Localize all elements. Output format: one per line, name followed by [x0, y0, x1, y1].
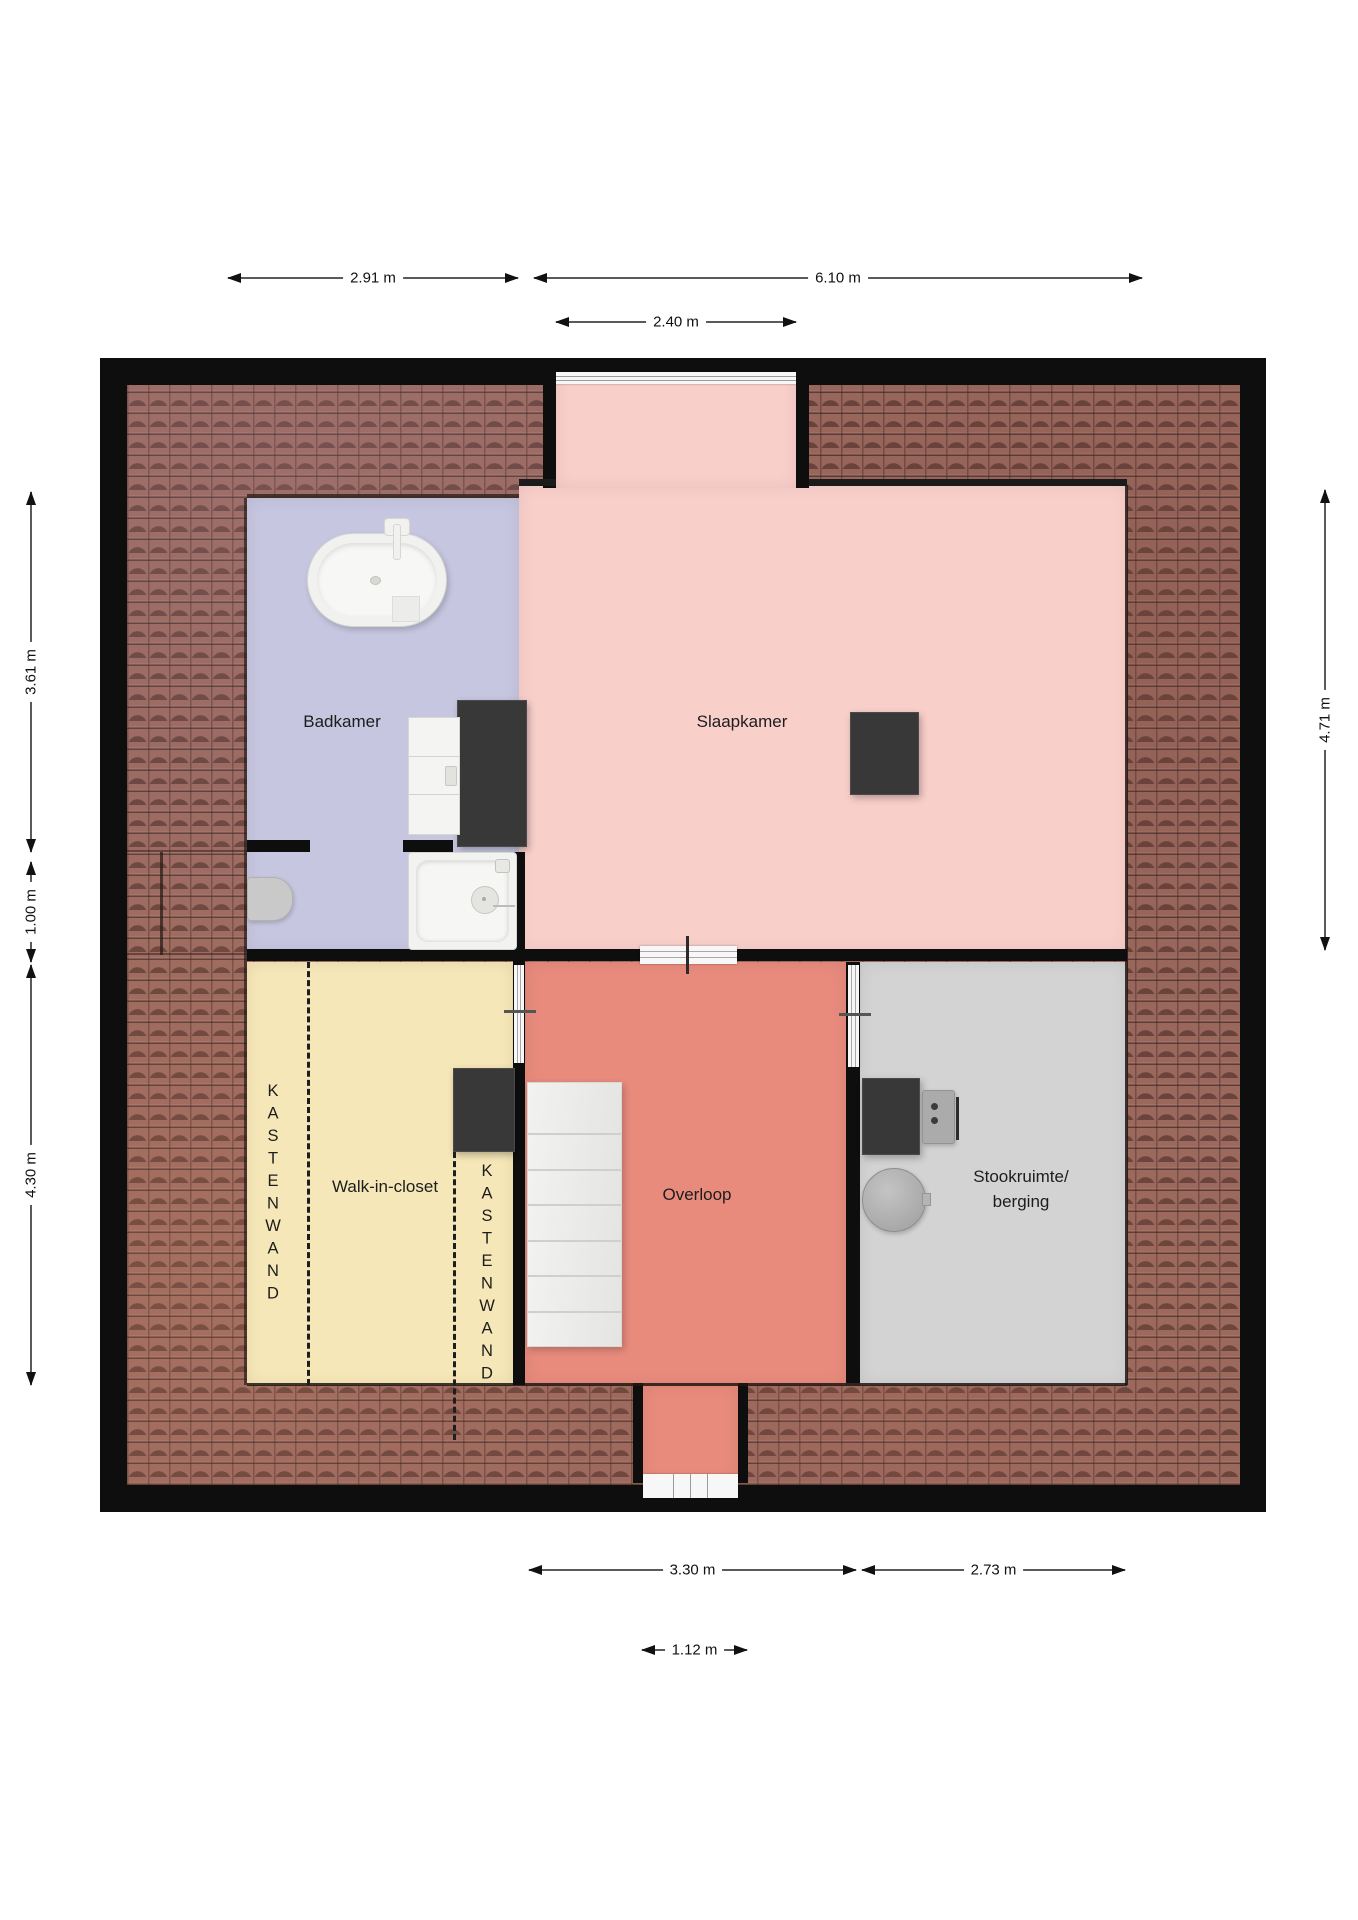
door-line: [851, 965, 852, 1067]
shower-vent: [495, 859, 510, 873]
dimension-top-2_91: 2.91 m: [228, 268, 518, 288]
label-stookruimte: Stookruimte/ berging: [973, 1164, 1068, 1214]
chimney-closet: [453, 1068, 515, 1152]
arrow-up-icon: [26, 964, 36, 978]
floorplan-canvas: Badkamer Slaapkamer Walk-in-closet Overl…: [0, 0, 1358, 1920]
door-line: [517, 965, 518, 1063]
dimension-label: 2.40 m: [646, 314, 706, 331]
dimension-top-2_40: 2.40 m: [556, 312, 796, 332]
dimension-bottom-3_30: 3.30 m: [529, 1560, 856, 1580]
knee-wall-slaapkamer-left: [519, 479, 556, 486]
window-line: [556, 376, 796, 377]
arrow-left-icon: [555, 317, 569, 327]
toilet: [247, 877, 293, 921]
dormer-bottom-wall-right: [738, 1383, 748, 1483]
chimney-slaapkamer: [850, 712, 919, 795]
stair-tread: [528, 1240, 621, 1275]
roof-hip-line-vertical: [160, 852, 163, 955]
boiler-pipe: [956, 1097, 959, 1140]
dimension-bottom-1_12: 1.12 m: [642, 1640, 747, 1660]
door-line: [855, 965, 856, 1067]
window-line: [556, 380, 796, 381]
dimension-label: 1.00 m: [23, 882, 40, 942]
shower-tray: [408, 852, 517, 950]
arrow-down-icon: [26, 949, 36, 963]
boiler-unit: [922, 1090, 955, 1144]
arrow-left-icon: [528, 1565, 542, 1575]
stair-tread: [528, 1204, 621, 1239]
dimension-label: 3.30 m: [663, 1562, 723, 1579]
knee-wall-slaapkamer-right: [809, 479, 1127, 486]
washbasin-cabinet: [408, 717, 460, 835]
cabinet-line: [409, 794, 459, 795]
room-slaapkamer: [519, 485, 1127, 950]
door-line: [520, 965, 521, 1063]
boiler-tank: [862, 1168, 926, 1232]
arrow-left-icon: [641, 1645, 655, 1655]
dimension-right-4_71: 4.71 m: [1315, 490, 1335, 950]
door-line: [673, 1474, 674, 1498]
roof-hip-line-top: [127, 850, 247, 852]
room-walk-in-closet: [247, 962, 513, 1385]
dimension-label: 4.71 m: [1317, 690, 1334, 750]
dimension-label: 2.73 m: [964, 1562, 1024, 1579]
label-walk-in-closet: Walk-in-closet: [332, 1177, 438, 1197]
arrow-down-icon: [26, 1372, 36, 1386]
bathtub-step: [392, 596, 420, 622]
arrow-right-icon: [505, 273, 519, 283]
knee-wall-badkamer-top: [247, 494, 519, 498]
dormer-top-window: [556, 372, 796, 384]
arrow-down-icon: [26, 839, 36, 853]
arrow-right-icon: [734, 1645, 748, 1655]
knee-wall-rooms-bottom: [247, 1383, 1127, 1386]
dimension-left-4_30: 4.30 m: [21, 965, 41, 1385]
boiler-dot: [931, 1103, 938, 1110]
door-closet-overloop: [514, 965, 524, 1063]
washbasin-faucet: [445, 766, 457, 786]
door-tick-top: [686, 936, 689, 974]
dormer-bottom: [643, 1385, 738, 1483]
cabinet-line: [409, 756, 459, 757]
arrow-down-icon: [1320, 937, 1330, 951]
arrow-up-icon: [26, 861, 36, 875]
stair-tread: [528, 1133, 621, 1168]
door-overloop-stookruimte: [848, 965, 859, 1067]
dimension-label: 1.12 m: [665, 1642, 725, 1659]
boiler-tank-tab: [922, 1193, 931, 1206]
label-stookruimte-line2: berging: [973, 1189, 1068, 1214]
bathtub-faucet-stem: [393, 524, 401, 560]
chimney-stookruimte: [862, 1078, 920, 1155]
arrow-left-icon: [227, 273, 241, 283]
dimension-label: 6.10 m: [808, 270, 868, 287]
closet-dashed-line-2: [453, 1152, 456, 1440]
dormer-top: [556, 372, 796, 488]
dimension-label: 2.91 m: [343, 270, 403, 287]
shower-hose: [493, 905, 515, 907]
arrow-right-icon: [783, 317, 797, 327]
dimension-left-1_00: 1.00 m: [21, 862, 41, 962]
arrow-right-icon: [1129, 273, 1143, 283]
arrow-right-icon: [843, 1565, 857, 1575]
label-kastenwand-left: KASTENWAND: [263, 1082, 282, 1307]
dormer-top-wall-right: [796, 372, 809, 488]
stair-tread: [528, 1169, 621, 1204]
dormer-top-wall-left: [543, 372, 556, 488]
label-stookruimte-line1: Stookruimte/: [973, 1164, 1068, 1189]
stairs: [527, 1082, 622, 1347]
dimension-label: 4.30 m: [23, 1145, 40, 1205]
stair-tread: [528, 1083, 621, 1133]
dimension-left-3_61: 3.61 m: [21, 492, 41, 852]
label-kastenwand-right: KASTENWAND: [477, 1162, 496, 1387]
boiler-dot: [931, 1117, 938, 1124]
knee-wall-rooms-right: [1125, 485, 1128, 1385]
arrow-up-icon: [26, 491, 36, 505]
label-badkamer: Badkamer: [303, 712, 380, 732]
wall-stub-badkamer-left: [247, 840, 310, 852]
shower-head-dot: [482, 897, 486, 901]
arrow-left-icon: [861, 1565, 875, 1575]
wall-stub-badkamer-mid: [403, 840, 453, 852]
dimension-top-6_10: 6.10 m: [534, 268, 1142, 288]
bathtub: [307, 533, 447, 627]
door-line: [690, 1474, 691, 1498]
label-slaapkamer: Slaapkamer: [697, 712, 788, 732]
closet-dashed-line-1: [307, 962, 310, 1385]
knee-wall-rooms-left: [244, 498, 247, 1385]
door-tick-left: [504, 1010, 536, 1013]
dormer-bottom-door: [643, 1474, 738, 1498]
label-overloop: Overloop: [663, 1185, 732, 1205]
dimension-label: 3.61 m: [23, 642, 40, 702]
chimney-badkamer: [457, 700, 527, 847]
stair-tread: [528, 1311, 621, 1346]
bathtub-drain: [370, 576, 381, 585]
roof-hip-line-bottom: [127, 953, 247, 955]
arrow-left-icon: [533, 273, 547, 283]
arrow-right-icon: [1112, 1565, 1126, 1575]
door-line: [707, 1474, 708, 1498]
arrow-up-icon: [1320, 489, 1330, 503]
dimension-bottom-2_73: 2.73 m: [862, 1560, 1125, 1580]
door-tick-right: [839, 1013, 871, 1016]
dormer-bottom-wall-left: [633, 1383, 643, 1483]
stair-tread: [528, 1275, 621, 1310]
